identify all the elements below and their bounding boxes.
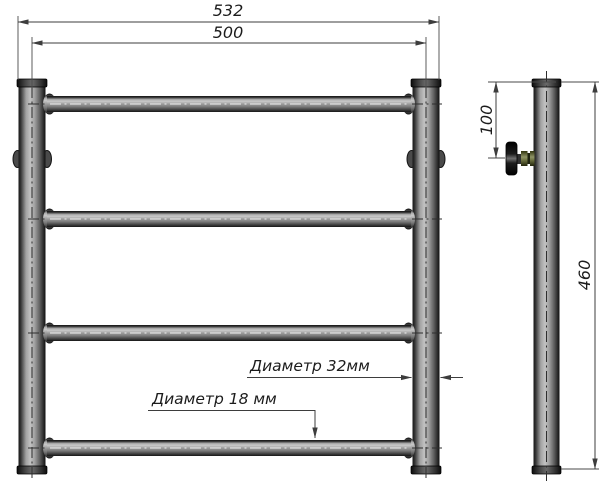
towel-rail-drawing: 532 500 100 460 Диаметр 32мм Диаметр 18 … [0,0,600,485]
leader-rung-diameter: Диаметр 18 мм [148,390,315,438]
front-view [13,79,445,481]
valve-nut [521,151,528,166]
dim-valve-offset-value: 100 [477,105,496,136]
side-view [506,71,561,481]
valve-shaft [517,154,522,164]
label-post-diameter: Диаметр 32мм [249,357,370,375]
valve-knob [506,142,517,175]
valve-fitting [506,142,535,175]
dim-total-width-value: 532 [213,1,244,20]
dim-height-value: 460 [575,260,594,291]
dimension-460: 460 [561,82,599,469]
technical-drawing-canvas: 532 500 100 460 Диаметр 32мм Диаметр 18 … [0,0,600,485]
label-rung-diameter: Диаметр 18 мм [151,390,277,408]
dim-axis-width-value: 500 [213,23,244,42]
centerlines-front [28,87,442,481]
dimension-500: 500 [32,23,426,88]
valve-union [530,151,535,166]
